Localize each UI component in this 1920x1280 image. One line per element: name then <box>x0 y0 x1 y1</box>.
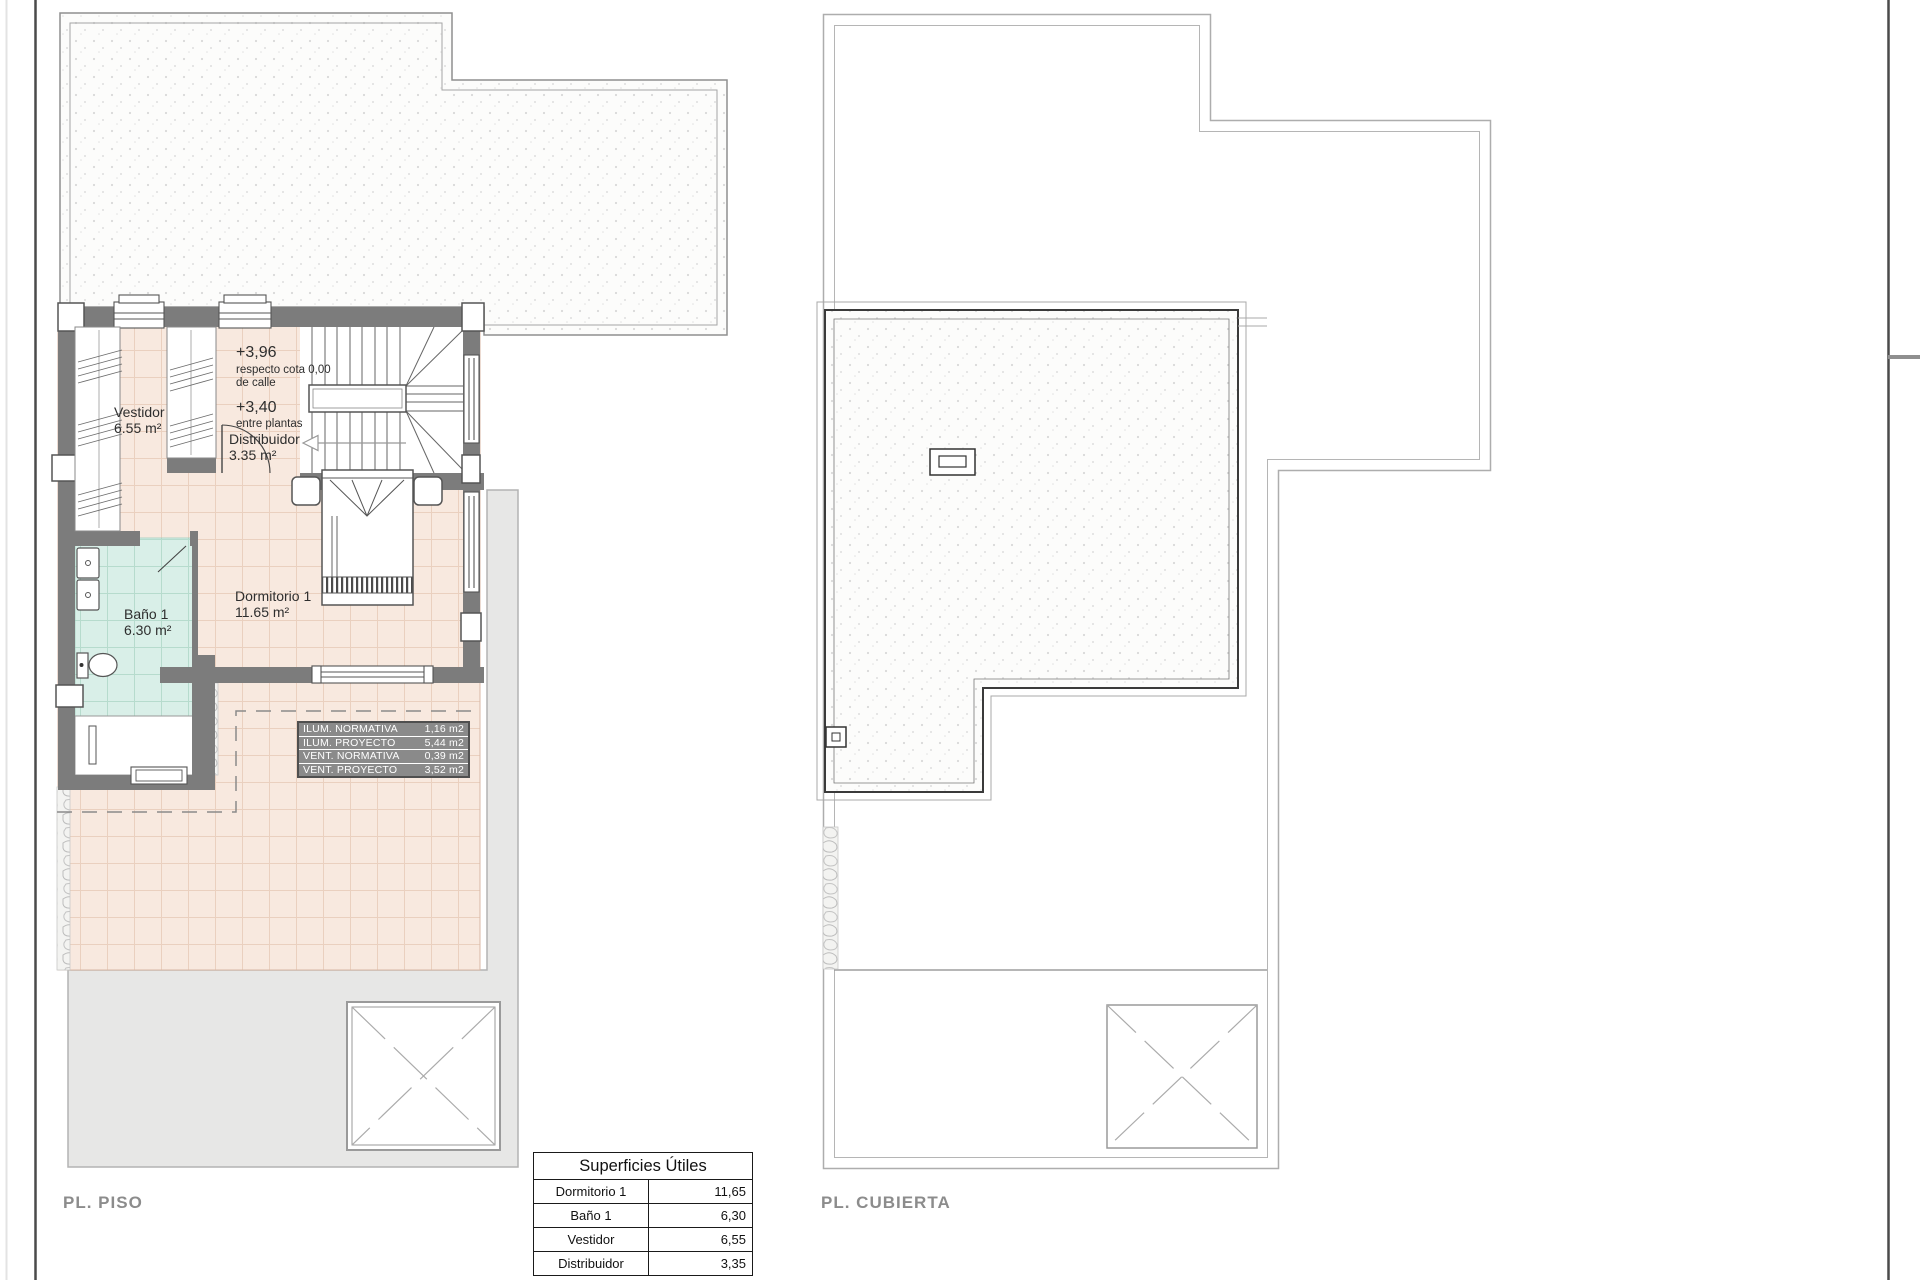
level-mid-note: entre plantas <box>236 418 303 431</box>
skylight-box <box>1107 1005 1257 1148</box>
plan-title-cubierta: PL. CUBIERTA <box>821 1193 951 1213</box>
table-header-row: Superficies Útiles <box>534 1153 753 1180</box>
row-label: Baño 1 <box>534 1204 649 1228</box>
pl-piso-plan <box>52 13 727 1167</box>
room-name: Dormitorio 1 <box>235 588 311 604</box>
level-upper-note2: de calle <box>236 377 276 390</box>
room-area: 6.55 m² <box>114 420 165 436</box>
terrace-roof <box>60 13 727 335</box>
row-value: 3,52 m2 <box>425 764 464 776</box>
lighting-ventilation-table: ILUM. NORMATIVA 1,16 m2 ILUM. PROYECTO 5… <box>297 721 470 778</box>
sink-icon <box>77 580 99 610</box>
row-value: 3,35 <box>649 1252 753 1276</box>
level-upper: +3,96 <box>236 344 276 363</box>
row-value: 6,30 <box>649 1204 753 1228</box>
table-row: ILUM. PROYECTO 5,44 m2 <box>299 736 468 750</box>
level-mid: +3,40 <box>236 399 276 418</box>
staircase <box>300 327 463 473</box>
row-label: ILUM. NORMATIVA <box>303 723 398 735</box>
room-name: Vestidor <box>114 404 165 420</box>
pl-cubierta-plan <box>817 15 1491 1169</box>
roof-drain-icon <box>826 727 846 747</box>
row-value: 6,55 <box>649 1228 753 1252</box>
row-label: VENT. NORMATIVA <box>303 750 400 762</box>
row-value: 5,44 m2 <box>425 737 464 749</box>
stone-strip <box>823 827 838 969</box>
sink-icon <box>77 548 99 578</box>
surfaces-table: Superficies Útiles Dormitorio 1 11,65 Ba… <box>533 1152 753 1276</box>
row-label: Vestidor <box>534 1228 649 1252</box>
row-label: ILUM. PROYECTO <box>303 737 395 749</box>
dormitorio-label: Dormitorio 1 11.65 m² <box>235 588 311 620</box>
skylight-box <box>347 1002 500 1150</box>
row-value: 1,16 m2 <box>425 723 464 735</box>
room-name: Distribuidor <box>229 431 300 447</box>
room-area: 6.30 m² <box>124 622 171 638</box>
table-row: Dormitorio 1 11,65 <box>534 1180 753 1204</box>
room-name: Baño 1 <box>124 606 171 622</box>
shower-screen <box>89 726 96 764</box>
toilet-icon <box>77 653 117 678</box>
table-row: VENT. PROYECTO 3,52 m2 <box>299 763 468 777</box>
table-row: VENT. NORMATIVA 0,39 m2 <box>299 749 468 763</box>
stone-strip-left <box>57 787 70 970</box>
table-row: ILUM. NORMATIVA 1,16 m2 <box>299 723 468 736</box>
row-label: VENT. PROYECTO <box>303 764 397 776</box>
plan-title-piso: PL. PISO <box>63 1193 143 1213</box>
row-label: Dormitorio 1 <box>534 1180 649 1204</box>
bano-label: Baño 1 6.30 m² <box>124 606 171 638</box>
drawing-sheet: Vestidor 6.55 m² +3,96 respecto cota 0,0… <box>0 0 1920 1280</box>
row-value: 11,65 <box>649 1180 753 1204</box>
table-row: Distribuidor 3,35 <box>534 1252 753 1276</box>
table-row: Baño 1 6,30 <box>534 1204 753 1228</box>
chimney-icon <box>930 449 975 475</box>
row-value: 0,39 m2 <box>425 750 464 762</box>
room-area: 11.65 m² <box>235 604 311 620</box>
level-upper-note1: respecto cota 0,00 <box>236 364 331 377</box>
table-title: Superficies Útiles <box>534 1153 753 1180</box>
floor-plan-drawing <box>0 0 1920 1280</box>
table-row: Vestidor 6,55 <box>534 1228 753 1252</box>
room-area: 3.35 m² <box>229 447 300 463</box>
distribuidor-label: Distribuidor 3.35 m² <box>229 431 300 463</box>
row-label: Distribuidor <box>534 1252 649 1276</box>
vestidor-label: Vestidor 6.55 m² <box>114 404 165 436</box>
